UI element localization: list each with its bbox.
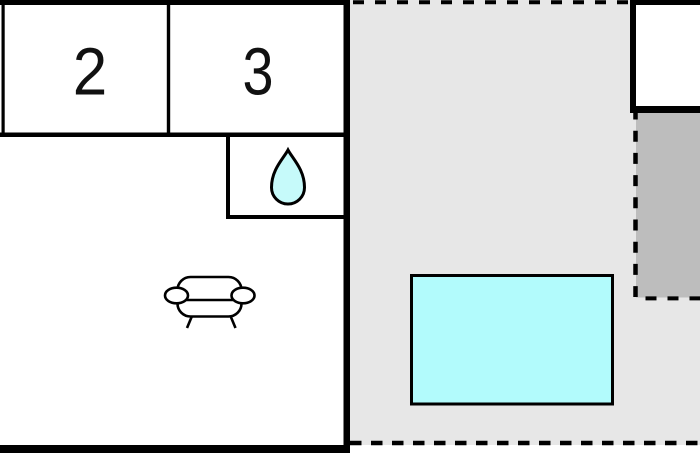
svg-text:2: 2 xyxy=(73,35,108,110)
svg-text:3: 3 xyxy=(243,35,274,110)
